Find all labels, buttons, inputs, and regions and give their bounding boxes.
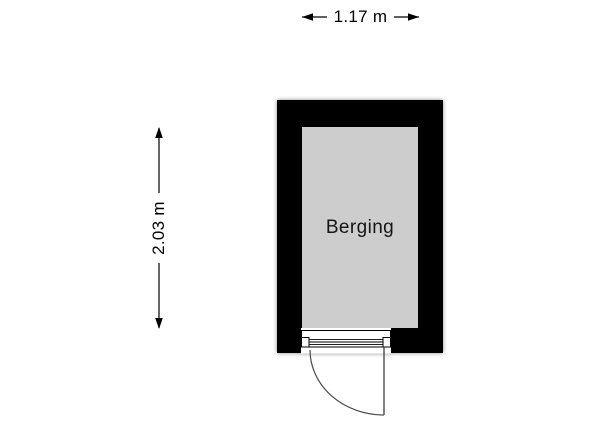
door-threshold <box>302 331 391 348</box>
door-jamb-right <box>383 338 391 348</box>
arrow-up-icon <box>155 127 163 138</box>
door-jamb-left <box>302 338 310 348</box>
width-dimension-label: 1.17 m <box>302 6 419 28</box>
floorplan-canvas: Berging 1.17 m 2.03 m <box>0 0 600 424</box>
room-label: Berging <box>302 127 418 328</box>
arrow-down-icon <box>155 318 163 329</box>
floorplan-drawing <box>0 0 600 424</box>
height-dimension-label: 2.03 m <box>149 201 169 255</box>
door-swing-arc-icon <box>310 350 384 415</box>
door-swing <box>310 347 384 415</box>
